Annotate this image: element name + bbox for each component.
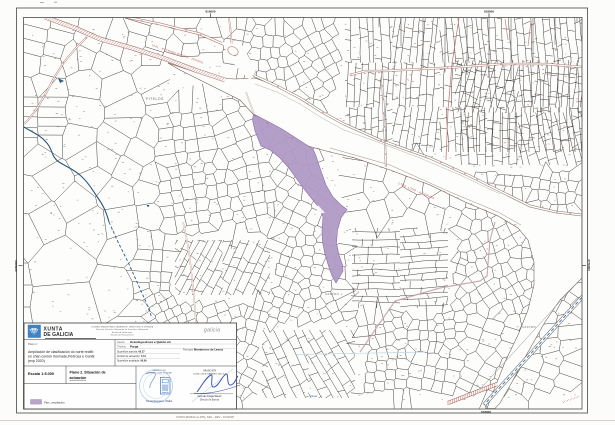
svg-text:Plano nº: Plano nº <box>28 342 38 346</box>
svg-text:Granda,pedrosa e Quintá s/n: Granda,pedrosa e Quintá s/n <box>130 340 171 344</box>
svg-text:actuación: actuación <box>70 376 87 380</box>
svg-text:Ámbito de actuación: 5,13: Ámbito de actuación: 5,13 <box>117 355 147 358</box>
svg-text:616000: 616000 <box>205 10 215 14</box>
svg-text:Monterroso de Lemos: Monterroso de Lemos <box>194 348 224 352</box>
svg-text:Servizo de Urbanismo: Servizo de Urbanismo <box>112 331 133 334</box>
svg-text:Sección de Planeamento: Sección de Planeamento <box>110 333 134 336</box>
svg-text:(exp 2020): (exp 2020) <box>28 359 45 363</box>
svg-text:Plano 2. Situación de: Plano 2. Situación de <box>70 371 106 375</box>
svg-text:Término: Término <box>117 345 126 348</box>
svg-text:618000: 618000 <box>481 410 491 414</box>
svg-text:Superficie ampliada: 99,99: Superficie ampliada: 99,99 <box>117 360 147 363</box>
svg-text:Parga: Parga <box>130 345 139 349</box>
svg-text:XUNTA MURALLA DTE, SRL - REV -: XUNTA MURALLA DTE, SRL - REV - 01/02/05 <box>176 415 234 419</box>
svg-text:CASTRO: CASTRO <box>325 292 339 296</box>
svg-text:Tomás Requeixo, Vilalba: Tomás Requeixo, Vilalba <box>146 400 173 403</box>
svg-text:CONSELLERIA DE MEDIO AMBIENTE,: CONSELLERIA DE MEDIO AMBIENTE, TERRITORI… <box>91 326 154 329</box>
svg-text:4776000: 4776000 <box>587 259 591 271</box>
svg-text:618000: 618000 <box>484 10 494 14</box>
svg-text:Utreia: Utreia <box>310 394 317 398</box>
svg-text:en chan común Xermade,Pedrosa: en chan común Xermade,Pedrosa e Guntir. <box>28 355 95 359</box>
svg-text:Asunto: Asunto <box>117 341 125 344</box>
svg-text:DE GALICIA: DE GALICIA <box>44 332 74 338</box>
svg-text:Director de Bureau: Director de Bureau <box>200 399 220 402</box>
svg-text:Parroquia: Parroquia <box>183 348 194 351</box>
svg-text:Germán Fraga Sáenz: Germán Fraga Sáenz <box>197 395 222 398</box>
svg-text:Ampliación de clasificación do: Ampliación de clasificación do norte rec… <box>28 350 94 354</box>
svg-text:Parc. ampliación: Parc. ampliación <box>44 401 65 405</box>
svg-text:galicia: galicia <box>204 328 220 334</box>
svg-text:LUNS, 24 DE XANEIRO 2022 17: LUNS, 24 DE XANEIRO 2022 17 <box>193 372 226 375</box>
svg-text:Escala 1:5.000: Escala 1:5.000 <box>28 372 54 376</box>
svg-text:CASTRO: CASTRO <box>522 325 536 329</box>
svg-text:Dirección Xeral de Ordenación: Dirección Xeral de Ordenación do Territo… <box>96 328 149 331</box>
svg-text:PITELOS: PITELOS <box>146 97 164 101</box>
svg-text:4776000: 4776000 <box>14 260 18 272</box>
svg-text:VÁLIDO ATA: VÁLIDO ATA <box>203 369 217 372</box>
svg-text:Superficie parcela: 66.27: Superficie parcela: 66.27 <box>117 350 145 353</box>
